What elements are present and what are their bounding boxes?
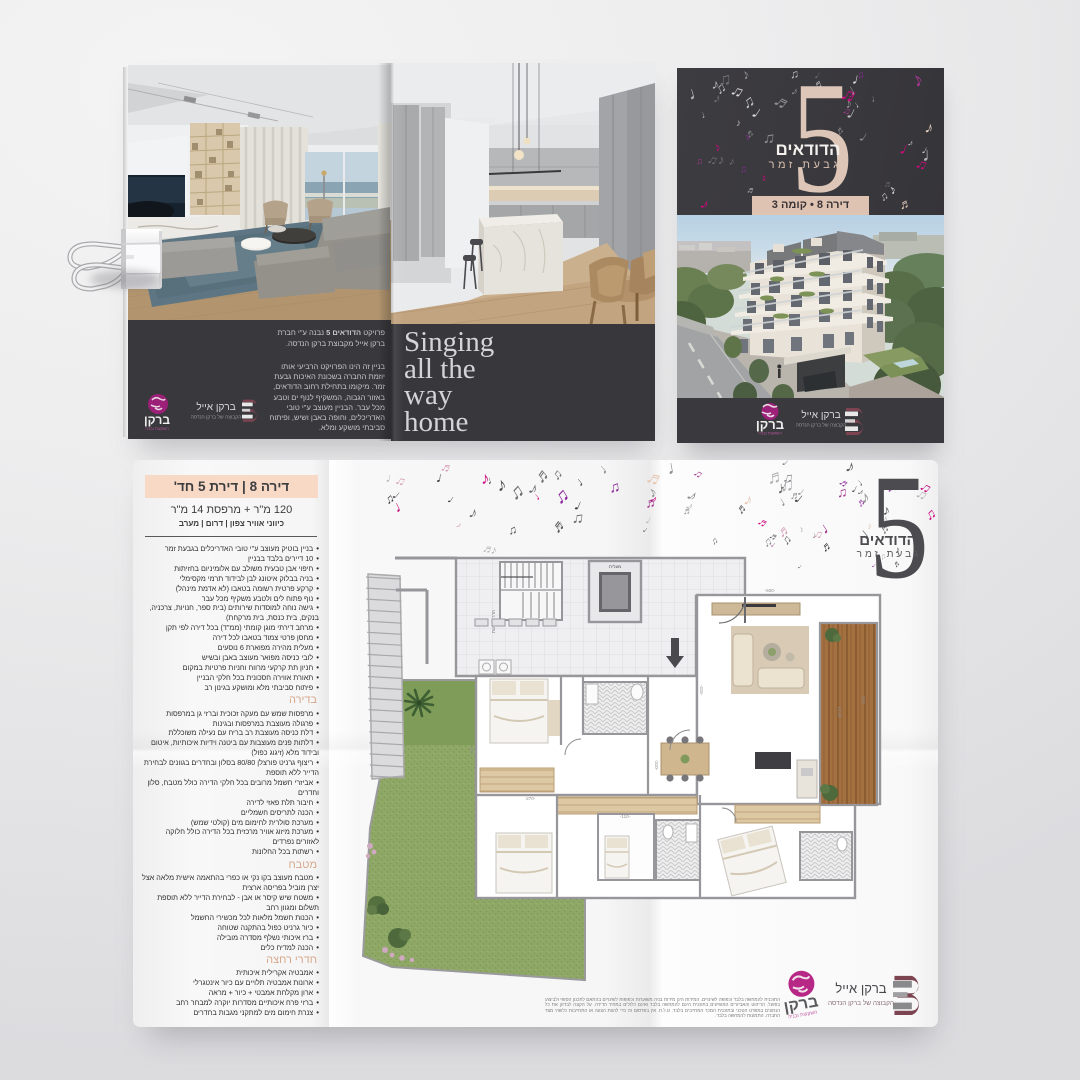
svg-text:-210-: -210-: [861, 695, 866, 706]
svg-text:השקעות ובניה: השקעות ובניה: [758, 431, 782, 436]
svg-text:השקעות ובניה: השקעות ובניה: [145, 426, 169, 431]
svg-text:12.20: 12.20: [837, 706, 842, 718]
svg-text:-415-: -415-: [699, 685, 704, 696]
svg-text:הקבוצה של ברקן הנדסה: הקבוצה של ברקן הנדסה: [191, 414, 242, 421]
svg-text:ברקן אייל: ברקן אייל: [196, 401, 235, 413]
svg-text:-110-: -110-: [620, 814, 631, 819]
svg-text:מעלית: מעלית: [609, 564, 621, 569]
svg-text:-500-: -500-: [765, 588, 776, 593]
svg-text:ברקן אייל: ברקן אייל: [835, 981, 886, 996]
svg-text:-310-: -310-: [654, 760, 659, 771]
svg-text:הקבוצה של ברקן הנדסה: הקבוצה של ברקן הנדסה: [828, 999, 894, 1007]
svg-text:-470-: -470-: [469, 745, 474, 756]
svg-text:ברקן אייל: ברקן אייל: [801, 409, 840, 421]
svg-text:הקבוצה של ברקן הנדסה: הקבוצה של ברקן הנדסה: [796, 422, 847, 429]
svg-text:-270-: -270-: [525, 796, 536, 801]
svg-text:ברקן: ברקן: [144, 413, 170, 427]
